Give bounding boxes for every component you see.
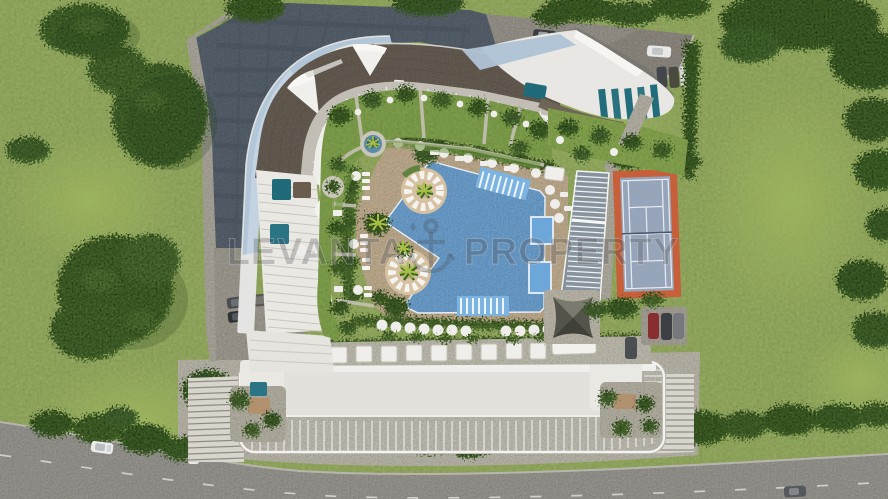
svg-text:PROPERTY: PROPERTY [464, 231, 680, 272]
svg-text:LEVANTA: LEVANTA [227, 231, 407, 272]
